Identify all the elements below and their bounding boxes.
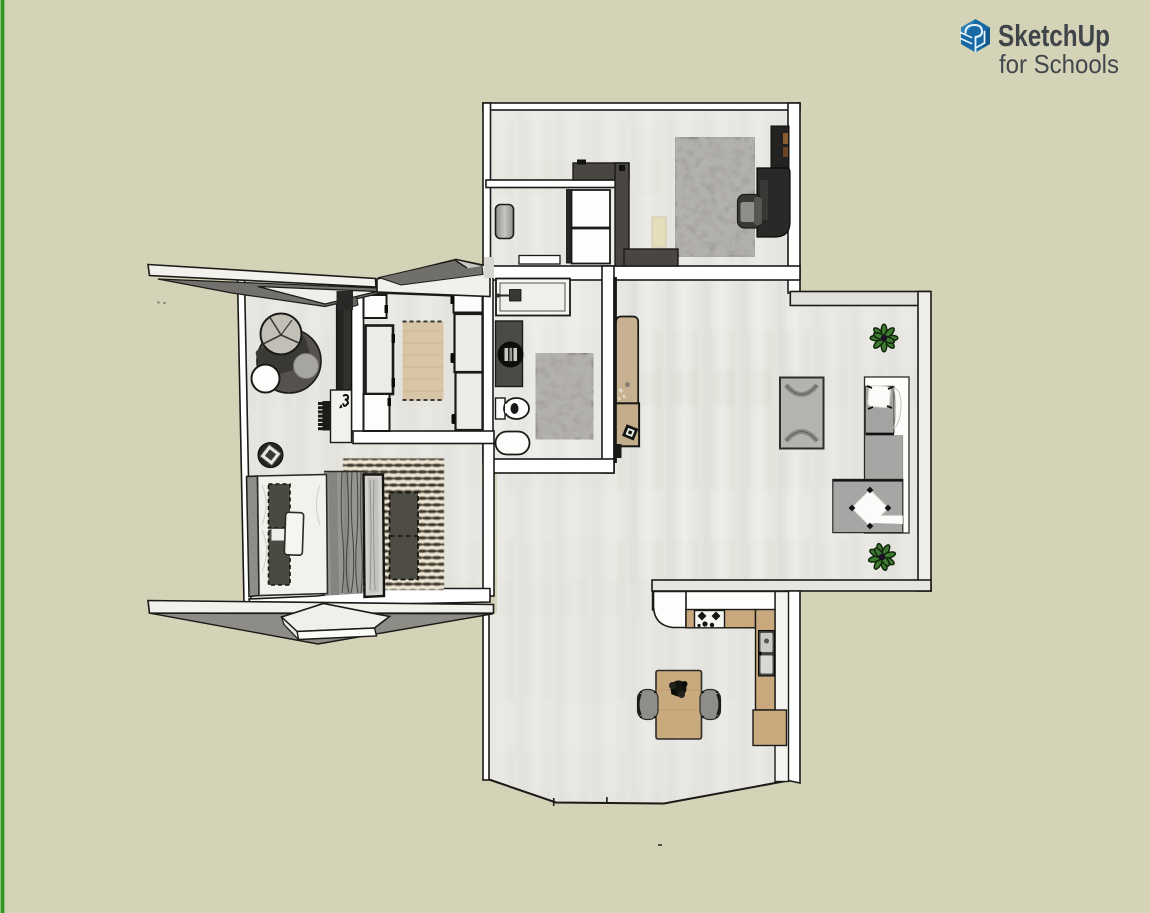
- svg-text:for Schools: for Schools: [999, 49, 1119, 79]
- svg-text:SketchUp: SketchUp: [998, 18, 1110, 53]
